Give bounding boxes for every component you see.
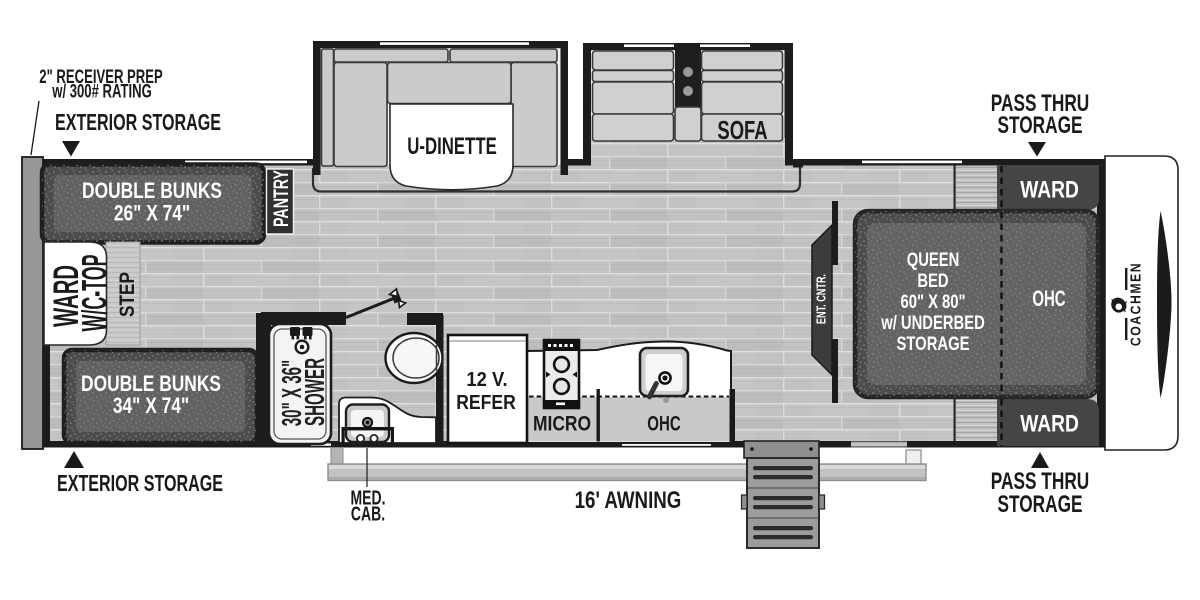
svg-text:w/ 300# RATING: w/ 300# RATING	[51, 81, 151, 102]
svg-text:U-DINETTE: U-DINETTE	[407, 133, 497, 160]
svg-text:MICRO: MICRO	[533, 413, 591, 436]
svg-text:w/ UNDERBED: w/ UNDERBED	[880, 312, 984, 333]
svg-text:12 V.: 12 V.	[466, 369, 507, 391]
svg-text:DOUBLE BUNKS: DOUBLE BUNKS	[81, 372, 221, 396]
svg-text:DOUBLE BUNKS: DOUBLE BUNKS	[82, 179, 222, 203]
svg-text:STORAGE: STORAGE	[997, 112, 1082, 138]
svg-text:SHOWER: SHOWER	[299, 358, 330, 426]
svg-text:STEP: STEP	[117, 272, 140, 317]
svg-text:STORAGE: STORAGE	[897, 333, 970, 354]
svg-text:PANTRY: PANTRY	[269, 170, 292, 227]
svg-text:WARD: WARD	[1020, 409, 1079, 437]
svg-text:OHC: OHC	[647, 411, 680, 435]
svg-text:26" X 74": 26" X 74"	[114, 202, 190, 226]
svg-text:W/C-TOP: W/C-TOP	[75, 255, 114, 332]
svg-text:16' AWNING: 16' AWNING	[575, 487, 682, 514]
svg-text:COACHMEN: COACHMEN	[1127, 262, 1143, 346]
svg-text:QUEEN: QUEEN	[907, 249, 960, 270]
svg-text:OHC: OHC	[1032, 286, 1066, 311]
svg-text:EXTERIOR STORAGE: EXTERIOR STORAGE	[57, 471, 223, 496]
svg-text:REFER: REFER	[456, 391, 516, 413]
svg-text:34" X 74": 34" X 74"	[113, 394, 189, 418]
svg-text:ENT. CNTR.: ENT. CNTR.	[815, 274, 829, 324]
svg-text:SOFA: SOFA	[717, 116, 767, 145]
svg-text:STORAGE: STORAGE	[997, 491, 1082, 517]
svg-text:60" X 80": 60" X 80"	[900, 291, 965, 312]
svg-text:EXTERIOR STORAGE: EXTERIOR STORAGE	[55, 110, 221, 135]
svg-text:CAB.: CAB.	[351, 502, 385, 525]
svg-text:BED: BED	[917, 270, 948, 291]
svg-text:WARD: WARD	[1020, 175, 1079, 203]
